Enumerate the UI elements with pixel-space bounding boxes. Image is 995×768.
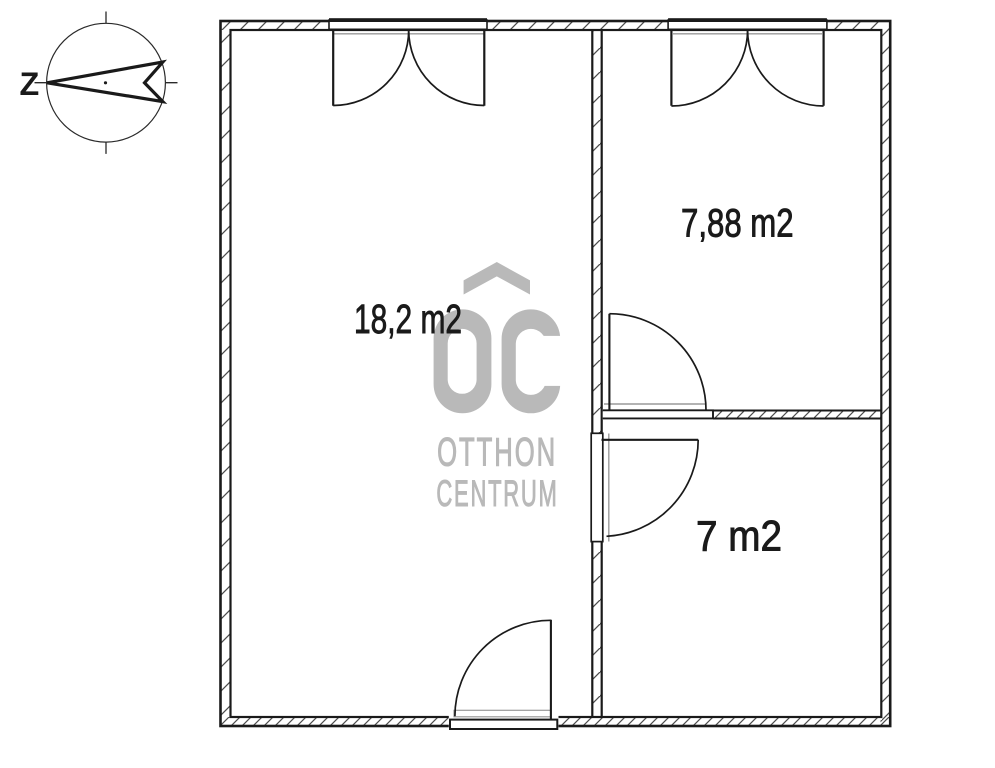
svg-text:OTTHON: OTTHON — [437, 431, 557, 475]
svg-text:7 m2: 7 m2 — [696, 513, 782, 561]
svg-text:18,2 m2: 18,2 m2 — [354, 296, 462, 342]
svg-text:Z: Z — [20, 66, 40, 102]
svg-text:CENTRUM: CENTRUM — [436, 472, 558, 514]
svg-text:7,88 m2: 7,88 m2 — [681, 201, 794, 245]
